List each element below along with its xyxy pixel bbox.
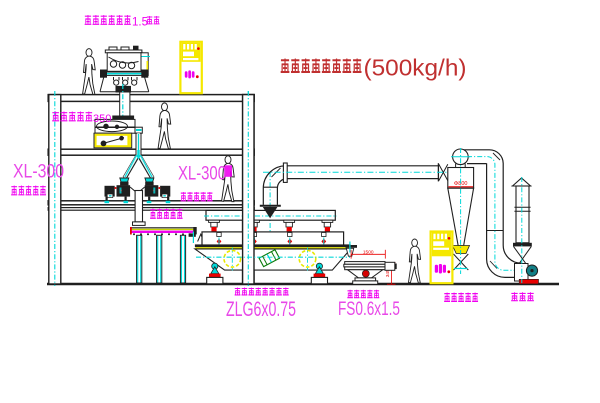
- svg-text:ZLG6x0.75: ZLG6x0.75: [226, 298, 296, 321]
- svg-text:1.5: 1.5: [132, 17, 148, 29]
- svg-text:FS0.6x1.5: FS0.6x1.5: [338, 299, 400, 320]
- svg-text:1500: 1500: [363, 249, 374, 255]
- svg-text:(500kg/h): (500kg/h): [364, 55, 467, 81]
- svg-text:350: 350: [93, 113, 111, 125]
- svg-text:XL-300: XL-300: [13, 162, 64, 183]
- svg-text:XL-300: XL-300: [178, 164, 226, 185]
